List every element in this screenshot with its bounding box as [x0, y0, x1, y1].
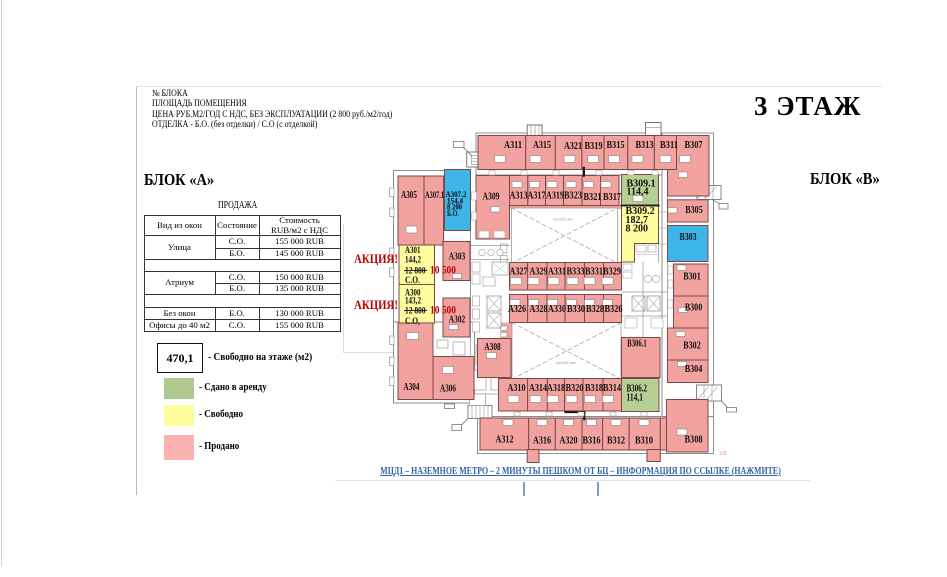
svg-text:10 500: 10 500: [430, 263, 456, 277]
svg-text:В310: В310: [635, 436, 653, 447]
svg-text:В326: В326: [605, 304, 623, 315]
svg-text:В306.1: В306.1: [627, 339, 647, 350]
svg-text:В329: В329: [603, 267, 621, 278]
svg-text:114,1: 114,1: [627, 393, 644, 404]
svg-text:А311: А311: [504, 140, 522, 151]
svg-text:В319: В319: [585, 141, 603, 152]
svg-text:А315: А315: [533, 140, 551, 151]
svg-text:А317: А317: [528, 191, 546, 202]
svg-text:143,2: 143,2: [405, 297, 421, 307]
svg-text:А306: А306: [440, 384, 456, 395]
svg-text:144,2: 144,2: [405, 256, 421, 266]
svg-text:А305: А305: [401, 190, 417, 201]
svg-text:12 800: 12 800: [405, 307, 426, 317]
svg-text:А304: А304: [404, 382, 421, 393]
svg-text:А301: А301: [405, 246, 421, 256]
svg-text:В315: В315: [607, 140, 625, 151]
svg-text:А309: А309: [483, 192, 500, 203]
svg-text:В314: В314: [603, 383, 622, 394]
svg-text:В316: В316: [583, 436, 601, 447]
svg-text:В330: В330: [567, 304, 585, 315]
svg-text:В302: В302: [683, 341, 701, 352]
svg-text:В300: В300: [685, 303, 703, 314]
svg-text:В301: В301: [683, 272, 701, 283]
svg-text:А310: А310: [508, 383, 526, 394]
svg-text:А330: А330: [548, 304, 566, 315]
svg-text:пВ: пВ: [720, 451, 727, 457]
svg-text:А316: А316: [533, 436, 551, 447]
svg-text:А313: А313: [510, 191, 528, 202]
svg-text:А331: А331: [548, 267, 566, 278]
svg-text:В331: В331: [585, 267, 603, 278]
svg-text:Б.О.: Б.О.: [447, 209, 459, 218]
svg-text:третий свет: третий свет: [556, 360, 577, 365]
svg-text:А326: А326: [508, 304, 526, 315]
svg-text:114,4: 114,4: [627, 187, 649, 198]
svg-text:А319: А319: [546, 191, 564, 202]
svg-text:10 500: 10 500: [430, 303, 456, 317]
svg-text:В321: В321: [584, 192, 602, 203]
svg-text:В323: В323: [564, 191, 582, 202]
svg-text:12 800: 12 800: [405, 267, 426, 277]
svg-text:В308: В308: [685, 435, 703, 446]
svg-text:А320: А320: [560, 436, 578, 447]
svg-text:А329: А329: [530, 267, 548, 278]
svg-text:С.О,: С.О,: [405, 317, 420, 327]
svg-text:В320: В320: [566, 383, 584, 394]
svg-text:АКЦИЯ!: АКЦИЯ!: [354, 298, 398, 312]
svg-text:В303: В303: [680, 232, 697, 243]
svg-text:А318: А318: [547, 383, 565, 394]
svg-text:А327: А327: [510, 267, 528, 278]
svg-text:А307.1: А307.1: [425, 190, 444, 200]
svg-text:В313: В313: [636, 140, 654, 151]
svg-text:8 200: 8 200: [626, 224, 649, 235]
svg-text:В311: В311: [660, 140, 678, 151]
svg-text:А308: А308: [484, 342, 501, 353]
svg-text:В333: В333: [567, 267, 585, 278]
svg-text:В328: В328: [586, 304, 604, 315]
svg-text:А312: А312: [496, 435, 514, 446]
svg-text:В317: В317: [603, 192, 621, 203]
svg-text:третий свет: третий свет: [553, 217, 574, 222]
svg-text:В305: В305: [685, 205, 703, 216]
svg-text:А303: А303: [449, 252, 466, 263]
svg-text:А314: А314: [529, 383, 548, 394]
svg-text:В318: В318: [585, 383, 603, 394]
svg-text:А321: А321: [564, 141, 582, 152]
svg-text:В312: В312: [607, 436, 625, 447]
svg-text:В307: В307: [685, 140, 703, 151]
svg-text:С.О.: С.О.: [405, 276, 420, 286]
svg-text:В304: В304: [685, 364, 703, 375]
svg-text:А328: А328: [530, 304, 548, 315]
svg-text:АКЦИЯ!: АКЦИЯ!: [354, 252, 398, 266]
